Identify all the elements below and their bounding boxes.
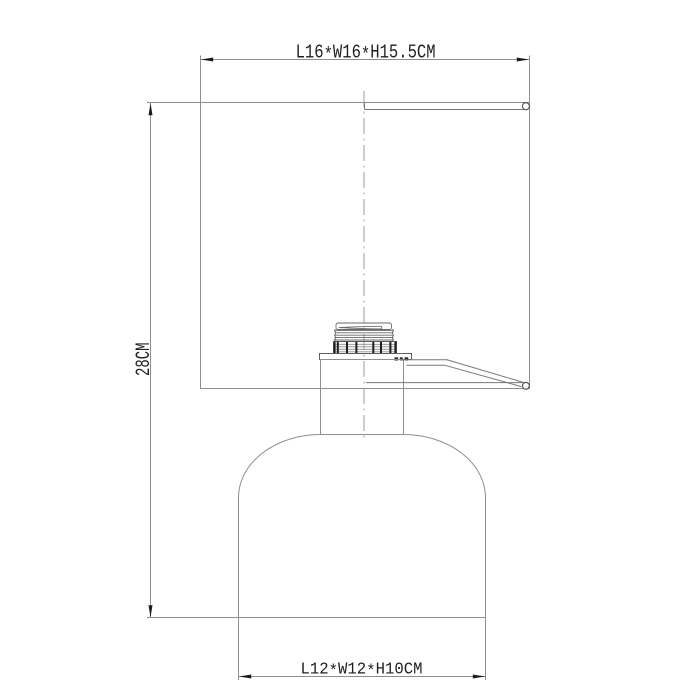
- svg-text:L16*W16*H15.5CM: L16*W16*H15.5CM: [296, 42, 436, 66]
- svg-text:L12*W12*H10CM: L12*W12*H10CM: [301, 661, 423, 682]
- svg-text:28CM: 28CM: [133, 343, 156, 377]
